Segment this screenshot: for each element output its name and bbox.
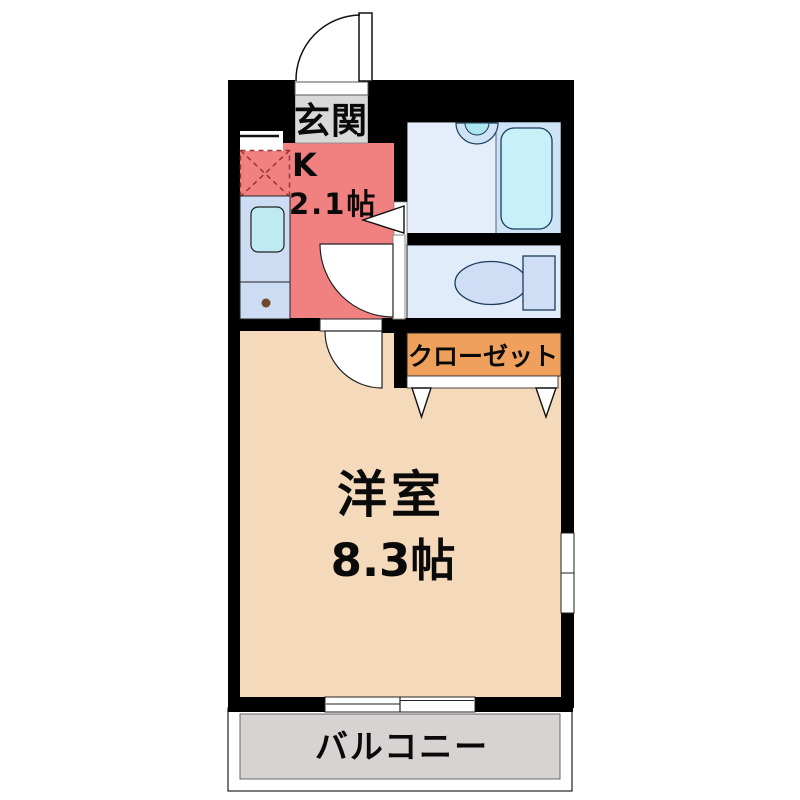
balcony-window <box>325 697 475 712</box>
closet-door-track <box>407 376 558 388</box>
side-window <box>561 533 574 613</box>
kitchen-label: K <box>292 146 318 184</box>
floor-plan-page: 玄関 K 2.1帖 クローゼット 洋室 8.3帖 バルコニー <box>0 0 800 800</box>
balcony-label: バルコニー <box>315 727 489 766</box>
toilet-door-leaf <box>393 235 405 319</box>
room-label: 洋室 <box>337 466 445 524</box>
entrance-door-arc <box>296 15 360 81</box>
room-door-leaf <box>320 319 382 331</box>
bathtub-icon <box>501 128 552 229</box>
entrance-door-leaf <box>359 13 372 81</box>
floor-plan-svg: 玄関 K 2.1帖 クローゼット 洋室 8.3帖 バルコニー <box>0 0 800 800</box>
kitchen-sink-icon <box>251 207 284 252</box>
counter-notch <box>240 131 283 151</box>
toilet-bowl-icon <box>455 262 527 305</box>
room-size-label: 8.3帖 <box>331 534 456 587</box>
kitchen-size-label: 2.1帖 <box>289 187 377 221</box>
closet-label: クローゼット <box>408 342 558 371</box>
genkan-label: 玄関 <box>294 101 368 142</box>
entrance-threshold <box>295 82 368 95</box>
toilet-tank-icon <box>523 256 555 310</box>
gas-outlet-icon <box>262 299 271 308</box>
